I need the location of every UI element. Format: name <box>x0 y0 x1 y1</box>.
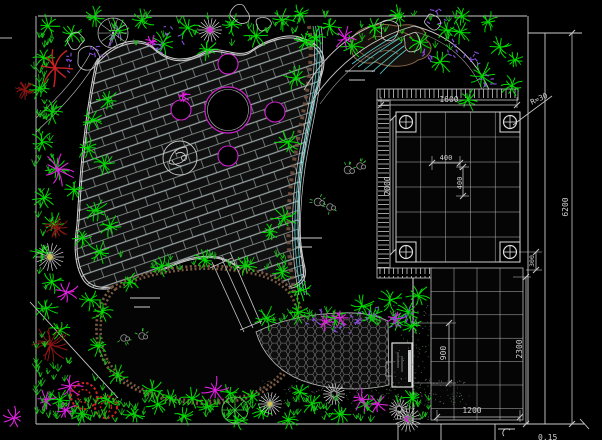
dot <box>428 419 429 420</box>
dot <box>420 325 421 326</box>
dot <box>460 381 461 382</box>
dot <box>357 390 358 391</box>
dot <box>429 380 430 381</box>
dot <box>313 384 314 385</box>
dot <box>435 399 436 400</box>
grass-blade <box>153 262 154 267</box>
dot <box>459 396 460 397</box>
dot <box>358 389 359 390</box>
dot <box>417 393 418 394</box>
plant-green-wheel <box>222 397 248 423</box>
dot <box>401 378 402 379</box>
dot <box>393 402 394 403</box>
dot <box>289 388 290 389</box>
dot <box>443 403 444 404</box>
dot <box>395 352 396 353</box>
grass-blade <box>232 395 233 403</box>
dot <box>429 393 430 394</box>
dot <box>428 417 429 418</box>
rock <box>144 335 148 339</box>
dot <box>293 400 294 401</box>
dot <box>395 385 396 386</box>
dot <box>420 392 421 393</box>
dot <box>418 382 419 383</box>
dot <box>367 381 368 382</box>
dot <box>284 389 285 390</box>
dot <box>265 383 266 384</box>
dot <box>365 386 366 387</box>
dot <box>396 353 397 354</box>
dot <box>424 311 425 312</box>
dot <box>314 392 315 393</box>
dot <box>447 390 448 391</box>
dot <box>419 353 420 354</box>
purple-tick <box>411 313 414 314</box>
dot <box>413 389 414 390</box>
dot <box>389 390 390 391</box>
pavilion-column <box>396 242 416 262</box>
dot <box>370 397 371 398</box>
dot <box>426 307 427 308</box>
dot <box>407 341 408 342</box>
dot <box>412 306 413 307</box>
dot <box>311 391 312 392</box>
dot <box>401 335 402 336</box>
dot <box>428 345 429 346</box>
dot <box>357 404 358 405</box>
dot <box>350 386 351 387</box>
dot <box>321 390 322 391</box>
dot <box>352 388 353 389</box>
dot <box>412 330 413 331</box>
dot <box>359 385 360 386</box>
dot <box>395 311 396 312</box>
dot <box>398 396 399 397</box>
dot <box>414 389 415 390</box>
dot <box>427 400 428 401</box>
dot <box>433 394 434 395</box>
dot <box>403 304 404 305</box>
dot <box>344 384 345 385</box>
dot <box>391 390 392 391</box>
dot <box>331 386 332 387</box>
dot <box>408 343 409 344</box>
dot <box>349 392 350 393</box>
dot <box>382 386 383 387</box>
pavilion-column <box>500 242 520 262</box>
dot <box>294 401 295 402</box>
dot <box>428 402 429 403</box>
dot <box>460 393 461 394</box>
dot <box>378 384 379 385</box>
dim-label-300: 300 <box>528 255 536 267</box>
dot <box>425 352 426 353</box>
drawing-stage: 1600 R=30 400 400 2000 300 2300 900 1200… <box>0 0 602 440</box>
stool-west <box>171 100 191 120</box>
dot <box>288 389 289 390</box>
dot <box>376 390 377 391</box>
dot <box>418 357 419 358</box>
dot <box>453 402 454 403</box>
dot <box>422 328 423 329</box>
dim-label-2300: 2300 <box>515 339 524 358</box>
dot <box>469 396 470 397</box>
dot <box>300 386 301 387</box>
dot <box>451 382 452 383</box>
dot <box>270 395 271 396</box>
dot <box>359 391 360 392</box>
dot <box>268 381 269 382</box>
purple-tick <box>358 312 362 313</box>
dot <box>447 381 448 382</box>
dot <box>414 378 415 379</box>
dot <box>419 348 420 349</box>
dot <box>414 332 415 333</box>
dot <box>299 401 300 402</box>
dot <box>398 394 399 395</box>
dot <box>416 345 417 346</box>
dot <box>408 403 409 404</box>
dot <box>289 391 290 392</box>
dot <box>440 396 441 397</box>
dot <box>265 397 266 398</box>
dot <box>457 392 458 393</box>
dot <box>356 395 357 396</box>
dot <box>407 322 408 323</box>
dot <box>431 390 432 391</box>
dot <box>453 404 454 405</box>
dot <box>402 386 403 387</box>
dot <box>364 389 365 390</box>
dot <box>453 399 454 400</box>
dot <box>426 399 427 400</box>
dot <box>371 388 372 389</box>
dot <box>446 386 447 387</box>
dot <box>398 386 399 387</box>
dot <box>414 311 415 312</box>
dot <box>378 393 379 394</box>
dot <box>344 395 345 396</box>
frond <box>490 47 500 48</box>
dot <box>427 305 428 306</box>
dot <box>418 340 419 341</box>
dot <box>383 401 384 402</box>
dot <box>448 395 449 396</box>
dot <box>427 322 428 323</box>
rock <box>362 165 366 169</box>
dot <box>454 398 455 399</box>
dot <box>307 402 308 403</box>
dot <box>420 387 421 388</box>
dot <box>308 403 309 404</box>
purple-tick <box>471 59 475 60</box>
dot <box>466 404 467 405</box>
dot <box>346 395 347 396</box>
dot <box>407 404 408 405</box>
dot <box>418 311 419 312</box>
dot <box>422 346 423 347</box>
dot <box>390 387 391 388</box>
dot <box>414 411 415 412</box>
dot <box>427 335 428 336</box>
dot <box>439 380 440 381</box>
dot <box>424 367 425 368</box>
dot <box>348 399 349 400</box>
dot <box>421 403 422 404</box>
stone-table <box>205 87 251 133</box>
dot <box>304 390 305 391</box>
purple-tick <box>448 50 449 53</box>
dot <box>389 393 390 394</box>
dot <box>307 382 308 383</box>
dot <box>412 364 413 365</box>
dot <box>457 382 458 383</box>
grass-blade <box>34 62 35 70</box>
stool-south <box>218 146 238 166</box>
dot <box>403 338 404 339</box>
dot <box>411 380 412 381</box>
dot <box>377 382 378 383</box>
dot <box>408 348 409 349</box>
rock <box>350 169 355 174</box>
dot <box>415 372 416 373</box>
dot <box>293 398 294 399</box>
dot <box>363 380 364 381</box>
dot <box>457 388 458 389</box>
dot <box>351 403 352 404</box>
dot <box>422 396 423 397</box>
dot <box>430 378 431 379</box>
dim-label-2000: 2000 <box>383 176 392 195</box>
dot <box>394 372 395 373</box>
dot <box>412 336 413 337</box>
dot <box>292 385 293 386</box>
dot <box>412 323 413 324</box>
dot <box>391 384 392 385</box>
dot <box>344 382 345 383</box>
dot <box>421 393 422 394</box>
dot <box>299 389 300 390</box>
dot <box>440 401 441 402</box>
dot <box>415 403 416 404</box>
dot <box>441 381 442 382</box>
dot <box>428 335 429 336</box>
dot <box>354 388 355 389</box>
dot <box>284 400 285 401</box>
dot <box>262 381 263 382</box>
dot <box>421 372 422 373</box>
dot <box>425 392 426 393</box>
dot <box>322 388 323 389</box>
dot <box>353 400 354 401</box>
dot <box>453 396 454 397</box>
dot <box>308 387 309 388</box>
dot <box>415 369 416 370</box>
dim-label-6200: 6200 <box>561 197 570 216</box>
dot <box>394 305 395 306</box>
dim-label-1600: 1600 <box>439 95 458 104</box>
dot <box>393 399 394 400</box>
dot <box>425 312 426 313</box>
dot <box>294 386 295 387</box>
dot <box>372 396 373 397</box>
rock <box>126 337 130 341</box>
dot <box>460 401 461 402</box>
dot <box>398 395 399 396</box>
trunk <box>112 32 114 34</box>
dot <box>327 381 328 382</box>
dot <box>425 326 426 327</box>
daisy-center <box>267 401 272 406</box>
pavilion-bottom-walk-band <box>377 268 433 278</box>
dot <box>352 401 353 402</box>
dot <box>436 394 437 395</box>
dot <box>271 386 272 387</box>
dot <box>417 386 418 387</box>
dot <box>418 412 419 413</box>
dot <box>269 381 270 382</box>
dot <box>385 385 386 386</box>
daisy-center <box>47 254 53 260</box>
dot <box>399 350 400 351</box>
dot <box>456 396 457 397</box>
dot <box>424 405 425 406</box>
dot <box>347 398 348 399</box>
dot <box>398 308 399 309</box>
dot <box>395 361 396 362</box>
dim-label-400-h: 400 <box>440 154 453 162</box>
dot <box>426 379 427 380</box>
dim-label-1200: 1200 <box>462 406 481 415</box>
dot <box>450 386 451 387</box>
dot <box>415 392 416 393</box>
dot <box>413 345 414 346</box>
dot <box>451 401 452 402</box>
dot <box>428 356 429 357</box>
dot <box>265 389 266 390</box>
dot <box>356 392 357 393</box>
dot <box>415 378 416 379</box>
dot <box>405 307 406 308</box>
dot <box>327 402 328 403</box>
dot <box>418 388 419 389</box>
dot <box>323 388 324 389</box>
dot <box>413 381 414 382</box>
dot <box>386 393 387 394</box>
grass-blade <box>61 402 62 408</box>
daisy-center <box>207 27 213 33</box>
dot <box>420 385 421 386</box>
rockery-outline <box>352 25 431 67</box>
dot <box>393 386 394 387</box>
dot <box>425 346 426 347</box>
dot <box>418 366 419 367</box>
dot <box>329 400 330 401</box>
dot <box>450 398 451 399</box>
dot <box>421 395 422 396</box>
dot <box>440 385 441 386</box>
dot <box>404 358 405 359</box>
purple-tick <box>395 316 396 319</box>
dot <box>412 408 413 409</box>
dot <box>419 349 420 350</box>
dot <box>459 381 460 382</box>
dot <box>402 401 403 402</box>
dot <box>455 402 456 403</box>
dot <box>407 340 408 341</box>
dot <box>414 386 415 387</box>
dot <box>425 380 426 381</box>
dot <box>388 398 389 399</box>
dot <box>258 396 259 397</box>
dot <box>284 403 285 404</box>
dot <box>428 386 429 387</box>
dot <box>395 389 396 390</box>
bench-back <box>408 350 411 382</box>
dot <box>399 356 400 357</box>
dot <box>409 351 410 352</box>
dot <box>424 315 425 316</box>
dim-label-400-v: 400 <box>456 177 464 190</box>
dot <box>414 356 415 357</box>
dot <box>398 361 399 362</box>
dot <box>428 315 429 316</box>
pavilion-column <box>396 112 416 132</box>
corner-note-label: 0.15 <box>538 433 557 440</box>
purple-tick <box>96 46 100 47</box>
dot <box>395 376 396 377</box>
dot <box>318 390 319 391</box>
dot <box>416 392 417 393</box>
stool-east <box>265 102 285 122</box>
dot <box>354 396 355 397</box>
dot <box>385 395 386 396</box>
dot <box>375 389 376 390</box>
dot <box>289 402 290 403</box>
dot <box>346 382 347 383</box>
dot <box>337 403 338 404</box>
dot <box>422 361 423 362</box>
dot <box>338 399 339 400</box>
dot <box>464 382 465 383</box>
dot <box>277 399 278 400</box>
dot <box>348 382 349 383</box>
dot <box>296 381 297 382</box>
dot <box>426 351 427 352</box>
rock <box>320 201 325 206</box>
dot <box>425 403 426 404</box>
dot <box>291 399 292 400</box>
dot <box>263 396 264 397</box>
dot <box>403 360 404 361</box>
dot <box>393 361 394 362</box>
dot <box>462 399 463 400</box>
rock <box>332 206 336 210</box>
landscape-plan-drawing: 1600 R=30 400 400 2000 300 2300 900 1200… <box>0 0 602 440</box>
dim-label-900: 900 <box>439 346 448 361</box>
dot <box>261 388 262 389</box>
dot <box>356 388 357 389</box>
dot <box>386 389 387 390</box>
frond <box>262 232 271 233</box>
dot <box>286 393 287 394</box>
dot <box>411 382 412 383</box>
dot <box>411 384 412 385</box>
dot <box>263 400 264 401</box>
dot <box>393 405 394 406</box>
dot <box>444 385 445 386</box>
dot <box>281 401 282 402</box>
